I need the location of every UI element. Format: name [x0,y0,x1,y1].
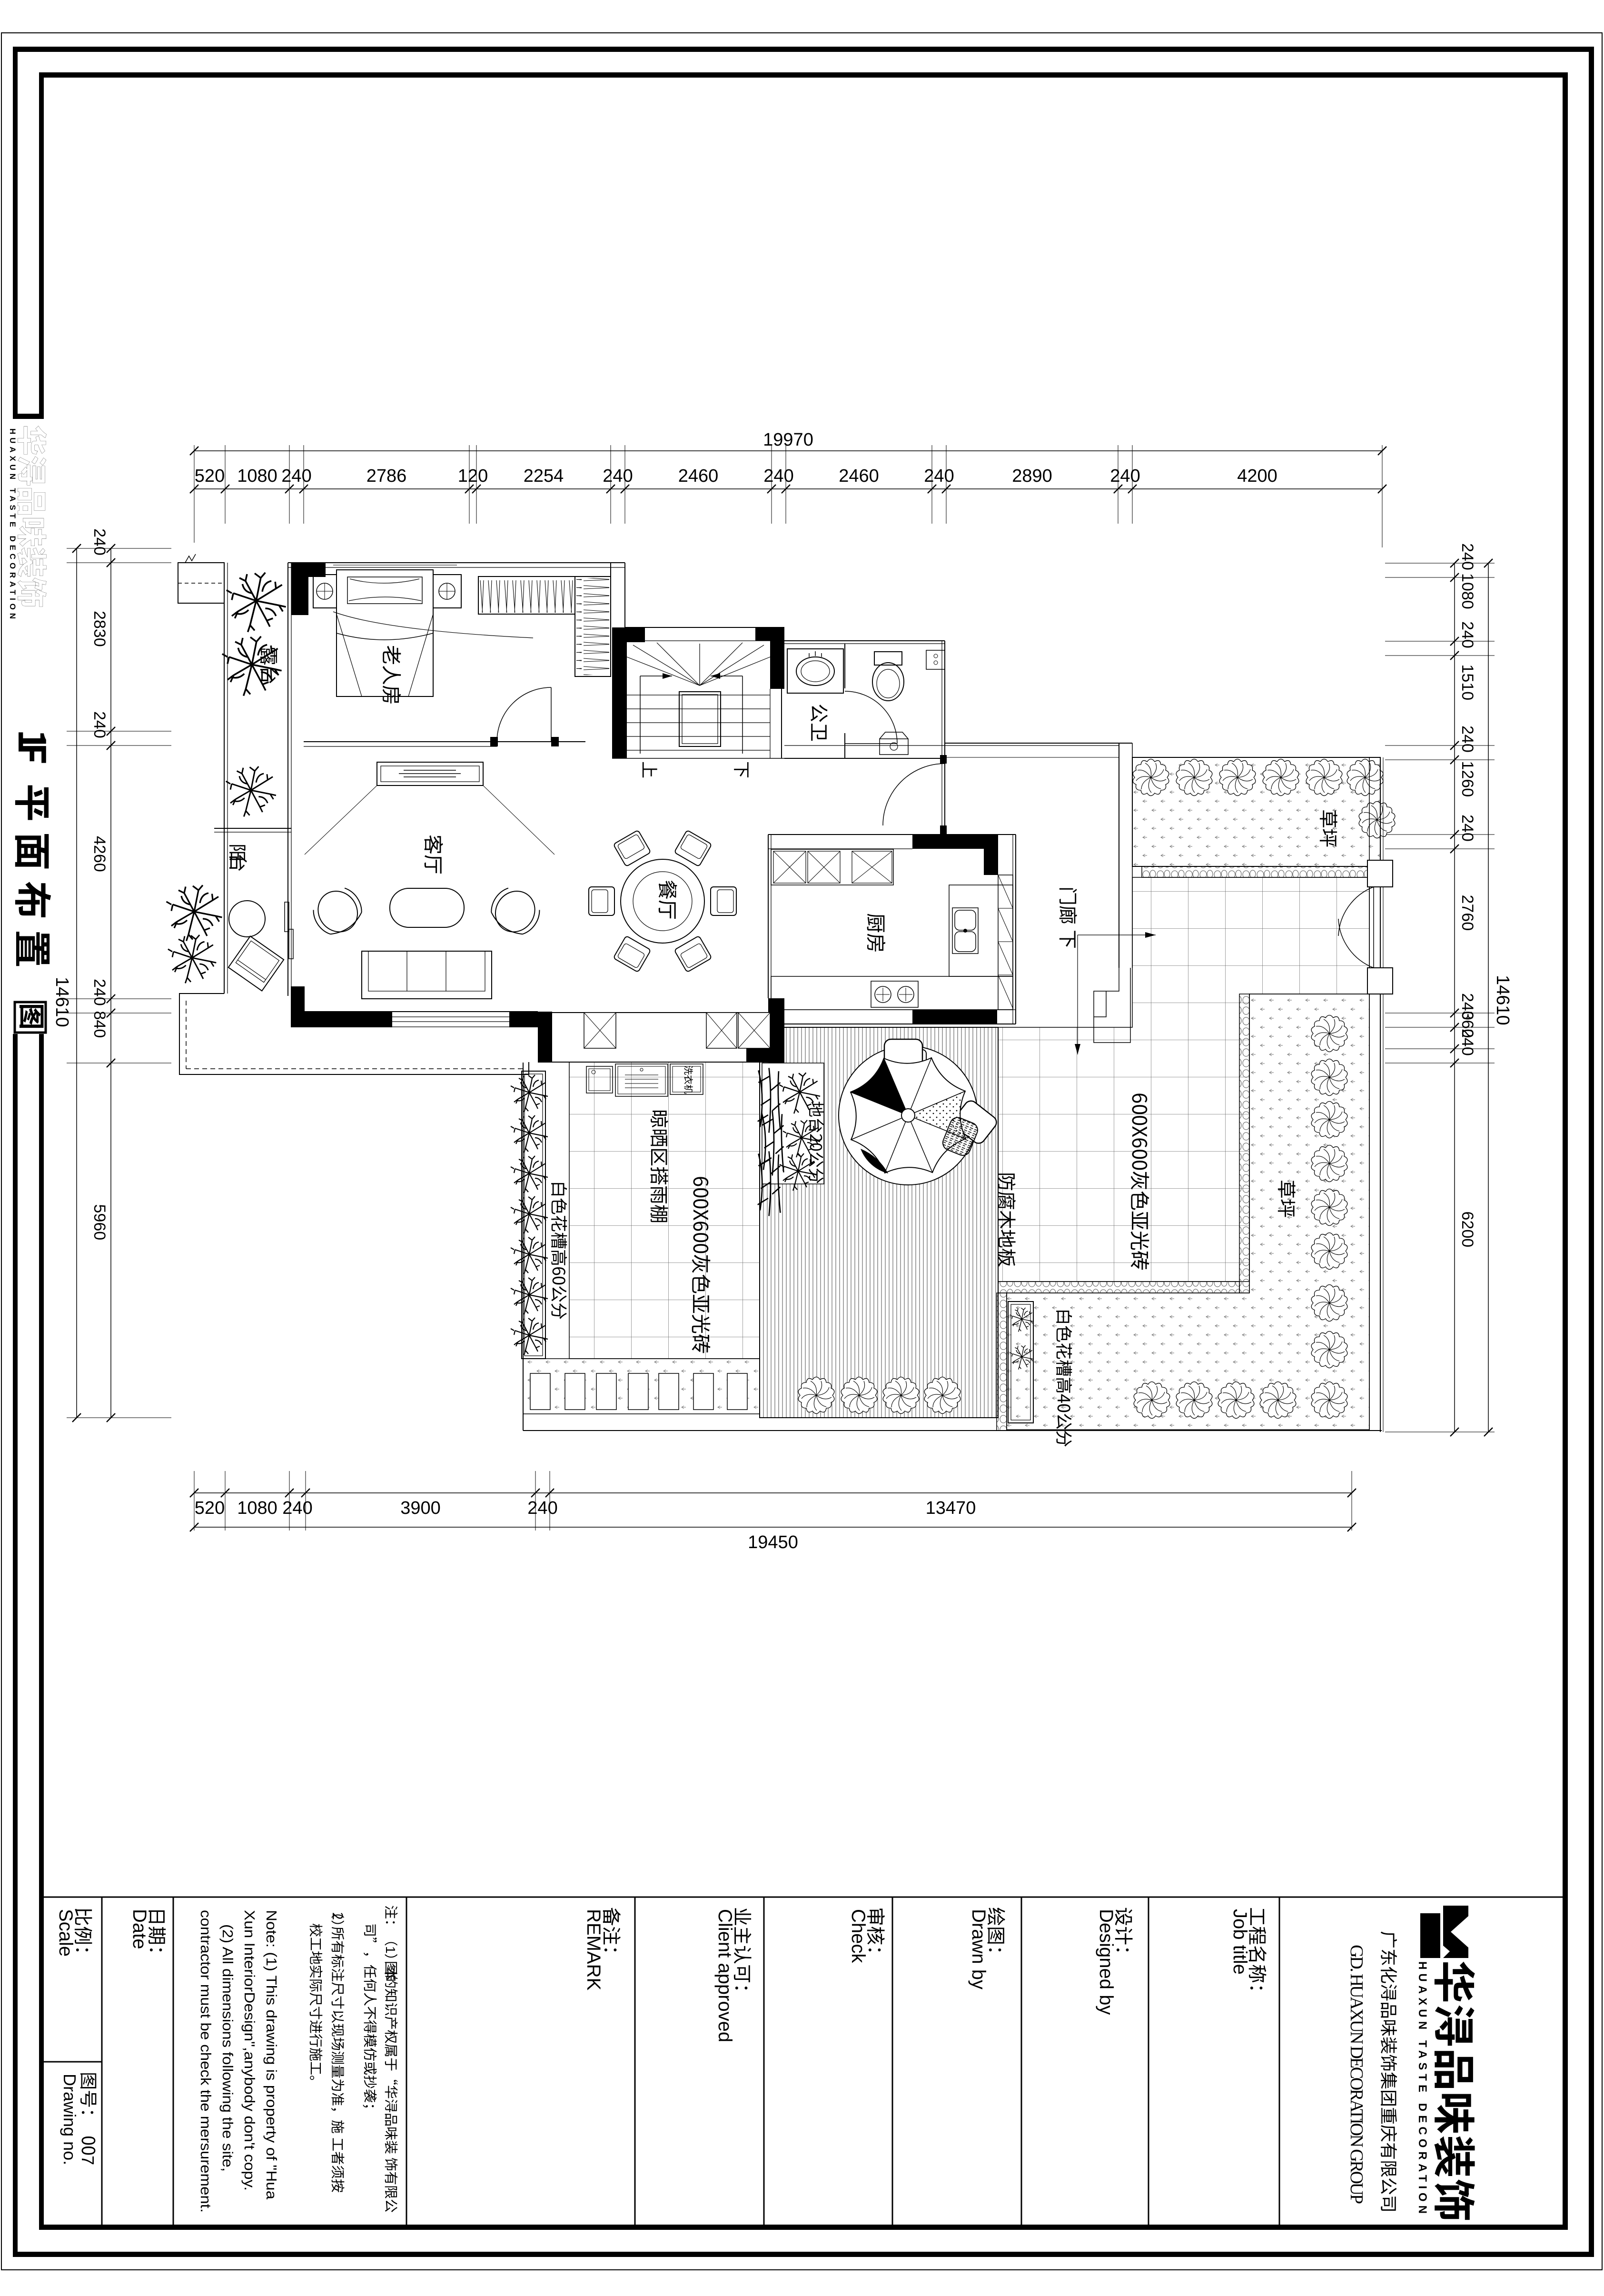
svg-text:14610: 14610 [1493,975,1513,1025]
svg-text:5960: 5960 [90,1204,109,1241]
svg-text:2830: 2830 [90,611,109,647]
svg-text:1080: 1080 [237,1498,277,1518]
svg-text:1080: 1080 [1458,573,1476,609]
svg-text:contractor must be check the m: contractor must be check the mersurement… [198,1910,214,2213]
svg-text:240: 240 [281,466,311,486]
svg-text:Drawn by: Drawn by [968,1909,989,1989]
svg-text:Check: Check [848,1909,869,1963]
svg-text:240: 240 [1458,815,1476,842]
svg-text:2460: 2460 [678,466,719,486]
svg-text:Client approved: Client approved [714,1909,735,2042]
svg-text:Note: (1) This drawing is pro: Note: (1) This drawing is property of "H… [263,1910,280,2200]
svg-text:520: 520 [195,466,225,486]
svg-text:HUAXUN TASTE DECORATION: HUAXUN TASTE DECORATION [8,428,17,619]
svg-text:240: 240 [603,466,633,486]
svg-text:Drawing no.: Drawing no. [60,2074,79,2165]
svg-text:2890: 2890 [1012,466,1052,486]
svg-text:2786: 2786 [366,466,407,486]
svg-text:Date: Date [129,1909,150,1949]
svg-text:19450: 19450 [748,1532,798,1552]
svg-text:840: 840 [90,1011,109,1038]
svg-text:240: 240 [763,466,793,486]
svg-text:240: 240 [1458,726,1476,753]
svg-text:240: 240 [90,979,109,1006]
svg-text:3900: 3900 [400,1498,441,1518]
svg-text:2254: 2254 [524,466,564,486]
svg-text:Xun InteriorDesign",anybody do: Xun InteriorDesign",anybody don't copy. [241,1910,258,2191]
svg-text:120: 120 [458,466,488,486]
svg-text:14610: 14610 [52,977,72,1027]
svg-text:1260: 1260 [1458,761,1476,797]
svg-text:240: 240 [1458,543,1476,570]
svg-text:GD. HUAXUN DECORATION GROUP: GD. HUAXUN DECORATION GROUP [1347,1945,1366,2204]
svg-text:4200: 4200 [1237,466,1277,486]
svg-text:REMARK: REMARK [583,1909,604,1990]
svg-text:240: 240 [90,528,109,556]
svg-text:13470: 13470 [926,1498,976,1518]
svg-text:7: 7 [78,2156,98,2165]
svg-text:240: 240 [90,711,109,738]
svg-text:240: 240 [282,1498,312,1518]
svg-text:(2) All dimensions following t: (2) All dimensions following the site, [219,1924,236,2172]
svg-text:2460: 2460 [839,466,879,486]
svg-text:HUAXUN TASTE DECORATION: HUAXUN TASTE DECORATION [1416,1961,1429,2214]
svg-text:240: 240 [1458,621,1476,648]
svg-text:19970: 19970 [763,430,813,450]
svg-text:520: 520 [195,1498,225,1518]
svg-text:240: 240 [527,1498,557,1518]
svg-text:240: 240 [924,466,954,486]
svg-text:Scale: Scale [55,1909,76,1957]
svg-text:Designed by: Designed by [1096,1909,1117,2015]
svg-text:240: 240 [1110,466,1140,486]
svg-text:2760: 2760 [1458,895,1476,931]
svg-text:240: 240 [1458,1029,1476,1056]
svg-text:4260: 4260 [90,836,109,872]
svg-text:6200: 6200 [1458,1212,1476,1248]
svg-text:1080: 1080 [237,466,277,486]
svg-text:Job title: Job title [1229,1909,1250,1975]
svg-text:1510: 1510 [1458,665,1476,701]
